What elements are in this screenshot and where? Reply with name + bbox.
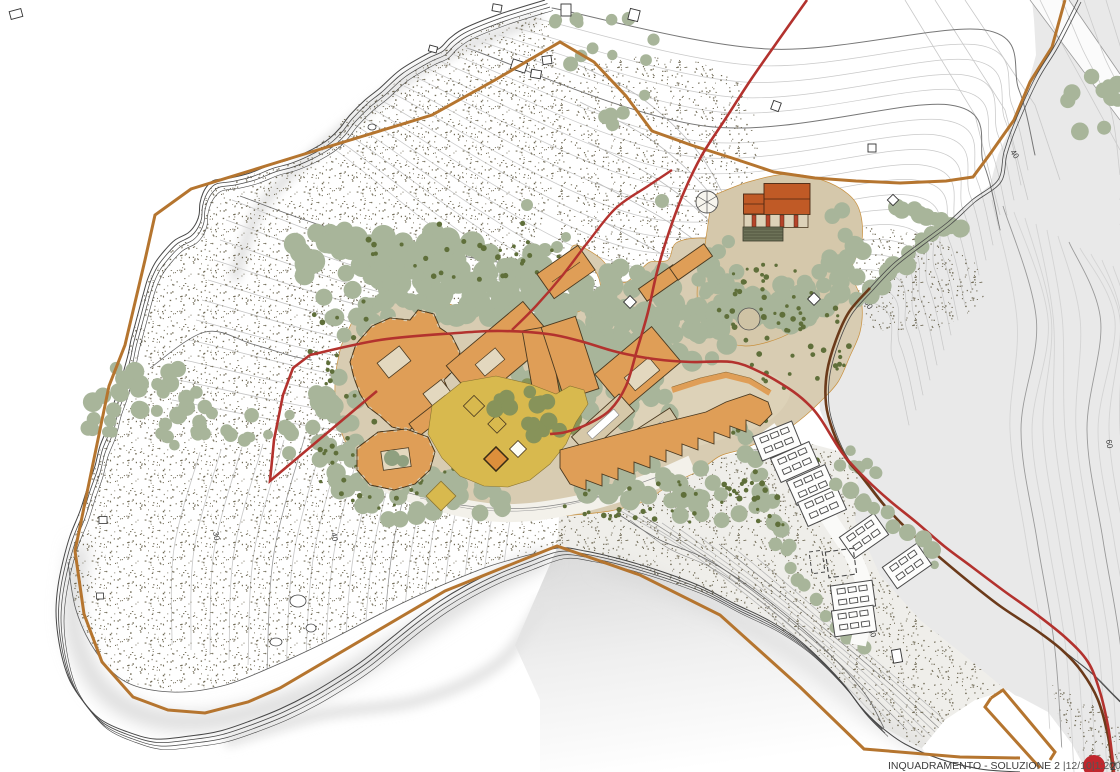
svg-text:2: 2: [1110, 761, 1116, 772]
svg-text:INQUADRAMENTO - SOLUZIONE 2 |1: INQUADRAMENTO - SOLUZIONE 2 |12/10|1:200…: [888, 760, 1120, 772]
